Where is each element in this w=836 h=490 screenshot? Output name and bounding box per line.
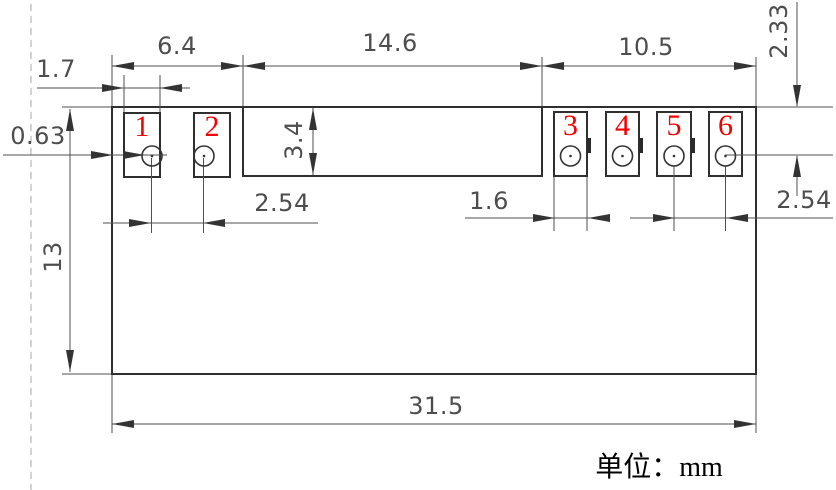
pad-2-number: 2	[205, 112, 220, 142]
dim-center-width: 14.6	[362, 31, 417, 55]
tick-mark	[640, 138, 644, 153]
dim-left-group-width: 6.4	[157, 34, 197, 58]
dim-pad-right-width: 1.6	[469, 189, 509, 213]
dimension-lines	[37, 2, 833, 424]
dim-left-hole-pitch: 2.54	[254, 191, 309, 215]
pad-6-number: 6	[718, 111, 733, 141]
pad-4-number: 4	[615, 111, 630, 141]
pad-3-number: 3	[563, 111, 578, 141]
dim-right-group-width: 10.5	[618, 35, 673, 59]
pad-5-number: 5	[667, 111, 682, 141]
dim-edge-to-pad-gap: 0.63	[10, 124, 65, 148]
dim-notch-height: 3.4	[282, 120, 306, 160]
dim-body-width: 31.5	[408, 394, 463, 418]
technical-drawing: 6.4 14.6 10.5 1.7 0.63 2.54 1.6 2.54 31.…	[0, 0, 836, 490]
tick-mark	[692, 138, 696, 153]
hole-center-dots	[151, 155, 727, 158]
dim-body-height: 13	[41, 241, 65, 273]
pad-1-number: 1	[135, 112, 150, 142]
pad-holes	[142, 146, 736, 166]
dim-right-hole-pitch: 2.54	[776, 188, 831, 212]
dim-pad-left-width: 1.7	[36, 57, 76, 81]
dim-top-to-hole: 2.33	[767, 3, 791, 58]
unit-label: 单位：mm	[595, 454, 723, 482]
tick-mark	[588, 138, 592, 153]
